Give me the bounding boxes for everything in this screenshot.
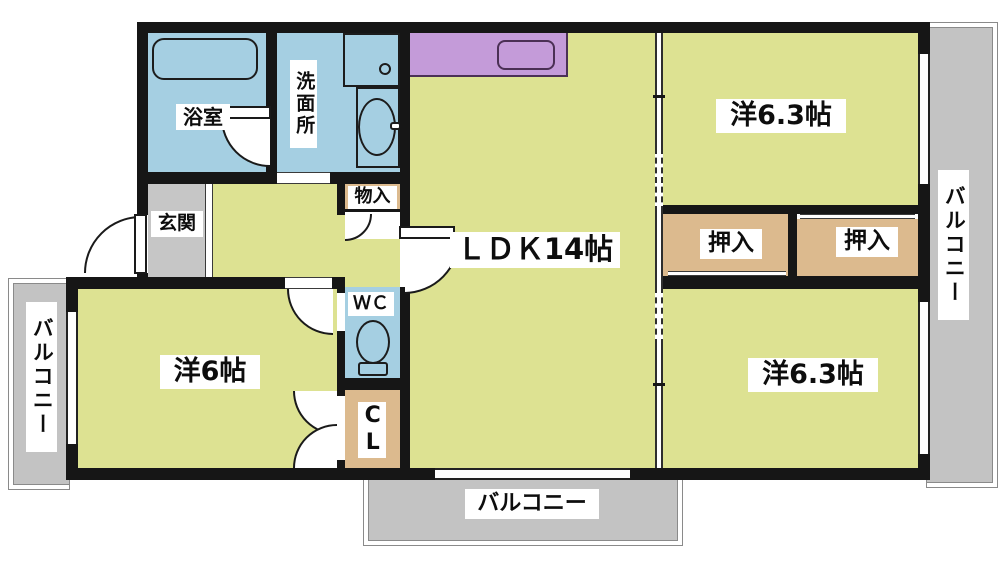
wc-doorway	[337, 293, 345, 331]
cl-label: CL	[358, 402, 386, 458]
wall-left-upper	[137, 22, 148, 184]
washroom-label: 洗面所	[290, 60, 317, 148]
wall-right-a	[918, 22, 930, 54]
window-east-bottom	[918, 302, 930, 454]
kitchen-sink-icon	[497, 40, 555, 70]
entrance-door-swing	[85, 217, 141, 273]
window-east-top	[918, 54, 930, 184]
partition-tick-lower	[653, 383, 665, 386]
wall-closet-middle	[788, 205, 797, 289]
western-room-top-label: 洋6.3帖	[716, 99, 846, 133]
wall-under-wet-a	[137, 172, 277, 184]
cl-doorway	[337, 396, 345, 460]
western-room-left-label: 洋6帖	[160, 355, 260, 389]
ldk-doorway	[400, 239, 410, 287]
western-left-doorway	[285, 277, 332, 289]
partition-tick-upper	[653, 95, 665, 98]
window-ldk-south	[435, 468, 630, 480]
partition-ldk-east	[655, 33, 663, 468]
bathroom-label: 浴室	[176, 104, 230, 130]
storage-door-zone	[345, 215, 400, 239]
partition-sliding-upper	[655, 148, 663, 212]
wall-bottom-b	[630, 468, 930, 480]
balcony-right-label: バルコニー	[938, 170, 969, 320]
wall-storage-left	[337, 184, 345, 215]
wall-mid-band-a	[66, 277, 285, 289]
floor-plan: 浴室 洗面所 玄関 物入 ＬＤＫ14帖 洋6.3帖 洋6.3帖 洋6帖 押入 押…	[0, 0, 1000, 562]
toilet-bowl-icon	[356, 320, 390, 364]
washer-pan-icon	[343, 33, 400, 87]
wall-under-wet-b	[330, 172, 410, 184]
closet-left-sliding-door	[668, 271, 786, 276]
hallway-floor-nook	[345, 239, 400, 287]
window-west-left	[66, 312, 78, 444]
closet-right-label: 押入	[836, 227, 898, 257]
wall-wc-cl-divider	[337, 378, 410, 390]
partition-sliding-lower	[655, 287, 663, 345]
closet-right-sliding-door	[800, 214, 915, 219]
wall-ldk-left-upper	[400, 22, 410, 239]
ldk-label: ＬＤＫ14帖	[450, 232, 620, 268]
bathtub-icon	[152, 38, 258, 80]
entrance-door-leaf	[135, 215, 146, 273]
wall-top	[137, 22, 930, 33]
closet-left-label: 押入	[700, 229, 762, 259]
wall-cl-left-a	[337, 388, 345, 396]
wall-right-c	[918, 454, 930, 480]
wall-west-left-a	[66, 277, 78, 312]
wall-entrance-outer-a	[137, 184, 148, 215]
balcony-bottom-label: バルコニー	[465, 489, 599, 519]
entrance-label: 玄関	[151, 211, 203, 237]
wc-label: ＷＣ	[348, 292, 394, 316]
wall-cl-left-b	[337, 460, 345, 468]
wall-bath-divider	[266, 33, 277, 172]
wall-bottom-a	[66, 468, 435, 480]
toilet-base-icon	[358, 362, 388, 376]
storage-label: 物入	[348, 186, 397, 209]
hallway-floor	[213, 184, 345, 287]
washroom-sliding-door	[277, 172, 330, 184]
balcony-left-label: バルコニー	[26, 302, 57, 452]
entrance-step-edge	[205, 184, 213, 287]
washer-pan-drain-icon	[379, 63, 391, 75]
western-room-bottom-label: 洋6.3帖	[748, 358, 878, 392]
